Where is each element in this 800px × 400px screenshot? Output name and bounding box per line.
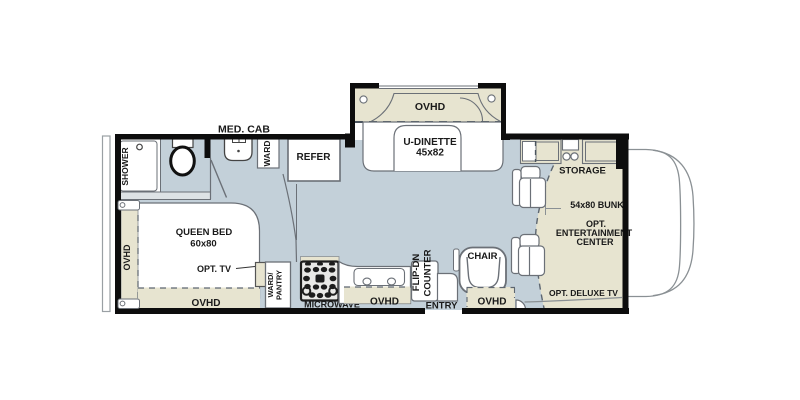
- svg-text:OPT. TV: OPT. TV: [197, 264, 231, 274]
- svg-text:OVHD: OVHD: [192, 298, 221, 309]
- svg-text:PANTRY: PANTRY: [275, 270, 284, 300]
- svg-text:OVHD: OVHD: [370, 297, 399, 308]
- svg-text:OPT. DELUXE TV: OPT. DELUXE TV: [549, 288, 618, 298]
- svg-text:U-DINETTE: U-DINETTE: [403, 137, 457, 148]
- svg-text:54x80 BUNK: 54x80 BUNK: [570, 200, 624, 210]
- svg-text:ENTRY: ENTRY: [426, 301, 459, 312]
- svg-text:60x80: 60x80: [190, 239, 216, 250]
- svg-text:45x82: 45x82: [416, 148, 444, 159]
- svg-text:STORAGE: STORAGE: [559, 166, 606, 177]
- svg-text:SHOWER: SHOWER: [120, 147, 130, 185]
- svg-text:QUEEN BED: QUEEN BED: [176, 227, 233, 238]
- svg-text:WARD: WARD: [262, 141, 272, 167]
- svg-text:COUNTER: COUNTER: [423, 249, 434, 296]
- svg-text:FLIP-DN: FLIP-DN: [411, 254, 422, 292]
- svg-text:CHAIR: CHAIR: [467, 251, 497, 262]
- svg-text:MED. CAB: MED. CAB: [218, 124, 270, 136]
- svg-text:OVHD: OVHD: [478, 297, 507, 308]
- svg-text:CENTER: CENTER: [576, 237, 614, 247]
- svg-text:OVHD: OVHD: [415, 101, 446, 113]
- svg-text:REFER: REFER: [297, 152, 332, 163]
- svg-text:OVHD: OVHD: [122, 244, 132, 271]
